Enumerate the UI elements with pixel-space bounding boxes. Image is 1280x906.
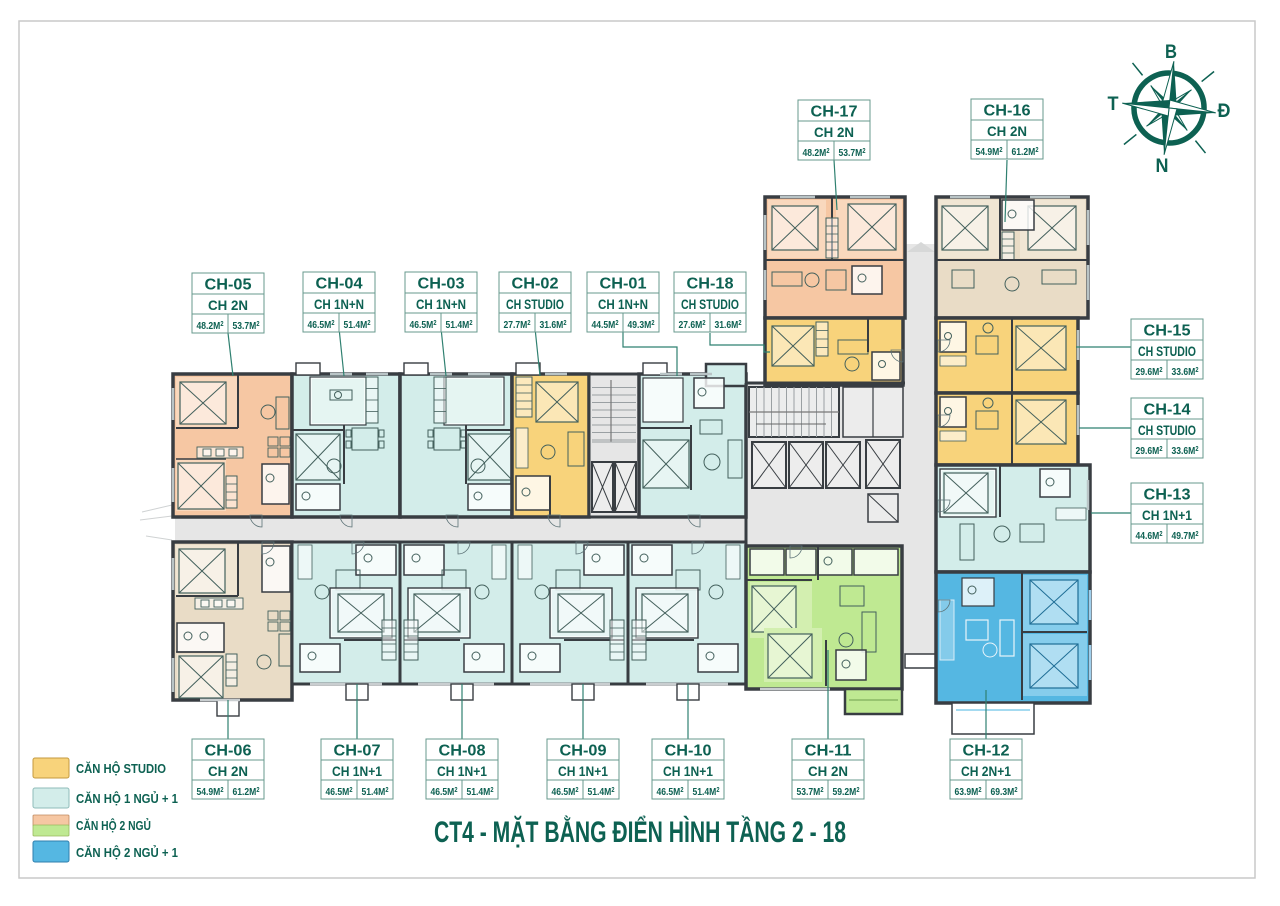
svg-text:CH-05: CH-05 — [205, 277, 252, 294]
svg-text:27.7M2: 27.7M2 — [504, 319, 531, 331]
svg-text:T: T — [1108, 94, 1119, 115]
svg-text:46.5M2: 46.5M2 — [552, 786, 579, 798]
svg-text:N: N — [1156, 156, 1169, 177]
svg-text:CH 1N+1: CH 1N+1 — [1142, 508, 1192, 523]
svg-text:61.2M2: 61.2M2 — [1012, 146, 1039, 158]
svg-text:CH-09: CH-09 — [560, 743, 607, 760]
svg-text:51.4M2: 51.4M2 — [588, 786, 615, 798]
svg-text:CH 2N: CH 2N — [808, 764, 848, 779]
svg-text:CH-10: CH-10 — [665, 743, 712, 760]
svg-text:CĂN HỘ 2 NGỦ + 1: CĂN HỘ 2 NGỦ + 1 — [76, 845, 178, 860]
svg-text:48.2M2: 48.2M2 — [197, 320, 224, 332]
svg-text:CH STUDIO: CH STUDIO — [1138, 344, 1196, 359]
svg-text:53.7M2: 53.7M2 — [797, 786, 824, 798]
svg-text:53.7M2: 53.7M2 — [233, 320, 260, 332]
svg-text:CH STUDIO: CH STUDIO — [681, 297, 739, 312]
svg-text:CH-07: CH-07 — [334, 743, 381, 760]
svg-text:CH 1N+N: CH 1N+N — [598, 297, 648, 312]
svg-text:CH-15: CH-15 — [1144, 323, 1191, 340]
svg-text:CH 2N: CH 2N — [208, 298, 248, 313]
svg-text:33.6M2: 33.6M2 — [1172, 445, 1199, 457]
svg-text:29.6M2: 29.6M2 — [1136, 445, 1163, 457]
svg-text:CH 2N: CH 2N — [814, 125, 854, 140]
svg-text:33.6M2: 33.6M2 — [1172, 366, 1199, 378]
svg-text:44.5M2: 44.5M2 — [592, 319, 619, 331]
svg-text:51.4M2: 51.4M2 — [467, 786, 494, 798]
svg-text:46.5M2: 46.5M2 — [431, 786, 458, 798]
svg-text:CH-06: CH-06 — [205, 743, 252, 760]
svg-text:CĂN HỘ 2 NGỦ: CĂN HỘ 2 NGỦ — [76, 818, 151, 833]
svg-text:31.6M2: 31.6M2 — [540, 319, 567, 331]
svg-text:CH-04: CH-04 — [316, 276, 363, 293]
svg-text:CH-08: CH-08 — [439, 743, 486, 760]
svg-text:B: B — [1165, 42, 1177, 63]
svg-text:51.4M2: 51.4M2 — [446, 319, 473, 331]
svg-text:CH-17: CH-17 — [811, 104, 858, 121]
svg-text:CH 1N+N: CH 1N+N — [314, 297, 364, 312]
svg-text:CH 2N: CH 2N — [987, 124, 1027, 139]
svg-text:46.5M2: 46.5M2 — [657, 786, 684, 798]
svg-text:51.4M2: 51.4M2 — [344, 319, 371, 331]
svg-text:46.5M2: 46.5M2 — [308, 319, 335, 331]
svg-text:CH 1N+1: CH 1N+1 — [332, 764, 382, 779]
svg-text:63.9M2: 63.9M2 — [955, 786, 982, 798]
svg-text:CH-16: CH-16 — [984, 103, 1031, 120]
svg-text:51.4M2: 51.4M2 — [693, 786, 720, 798]
svg-text:54.9M2: 54.9M2 — [197, 786, 224, 798]
svg-text:29.6M2: 29.6M2 — [1136, 366, 1163, 378]
svg-text:CH-03: CH-03 — [418, 276, 465, 293]
svg-text:CH STUDIO: CH STUDIO — [506, 297, 564, 312]
svg-text:CH 1N+1: CH 1N+1 — [558, 764, 608, 779]
svg-text:CH-02: CH-02 — [512, 276, 559, 293]
svg-text:CH-01: CH-01 — [600, 276, 647, 293]
svg-text:CH STUDIO: CH STUDIO — [1138, 423, 1196, 438]
svg-text:CT4 - MẶT BẰNG ĐIỂN HÌNH TẦNG: CT4 - MẶT BẰNG ĐIỂN HÌNH TẦNG 2 - 18 — [434, 815, 846, 849]
svg-text:CH 1N+N: CH 1N+N — [416, 297, 466, 312]
svg-text:53.7M2: 53.7M2 — [839, 147, 866, 159]
svg-text:CĂN HỘ 1 NGỦ + 1: CĂN HỘ 1 NGỦ + 1 — [76, 791, 178, 806]
svg-text:CH 1N+1: CH 1N+1 — [437, 764, 487, 779]
svg-text:CH-12: CH-12 — [963, 743, 1010, 760]
svg-text:49.3M2: 49.3M2 — [628, 319, 655, 331]
svg-text:CH-18: CH-18 — [687, 276, 734, 293]
svg-text:CH 2N+1: CH 2N+1 — [961, 764, 1011, 779]
svg-text:CH-14: CH-14 — [1144, 402, 1191, 419]
svg-text:CĂN HỘ STUDIO: CĂN HỘ STUDIO — [76, 761, 166, 776]
svg-text:54.9M2: 54.9M2 — [976, 146, 1003, 158]
svg-text:51.4M2: 51.4M2 — [362, 786, 389, 798]
svg-text:27.6M2: 27.6M2 — [679, 319, 706, 331]
svg-text:48.2M2: 48.2M2 — [803, 147, 830, 159]
svg-text:CH 1N+1: CH 1N+1 — [663, 764, 713, 779]
svg-text:46.5M2: 46.5M2 — [410, 319, 437, 331]
svg-text:CH-11: CH-11 — [805, 743, 852, 760]
svg-text:61.2M2: 61.2M2 — [233, 786, 260, 798]
svg-text:46.5M2: 46.5M2 — [326, 786, 353, 798]
svg-text:31.6M2: 31.6M2 — [715, 319, 742, 331]
svg-text:44.6M2: 44.6M2 — [1136, 530, 1163, 542]
svg-text:CH 2N: CH 2N — [208, 764, 248, 779]
svg-text:69.3M2: 69.3M2 — [991, 786, 1018, 798]
svg-text:59.2M2: 59.2M2 — [833, 786, 860, 798]
svg-text:CH-13: CH-13 — [1144, 487, 1191, 504]
svg-text:Đ: Đ — [1218, 101, 1231, 122]
svg-text:49.7M2: 49.7M2 — [1172, 530, 1199, 542]
